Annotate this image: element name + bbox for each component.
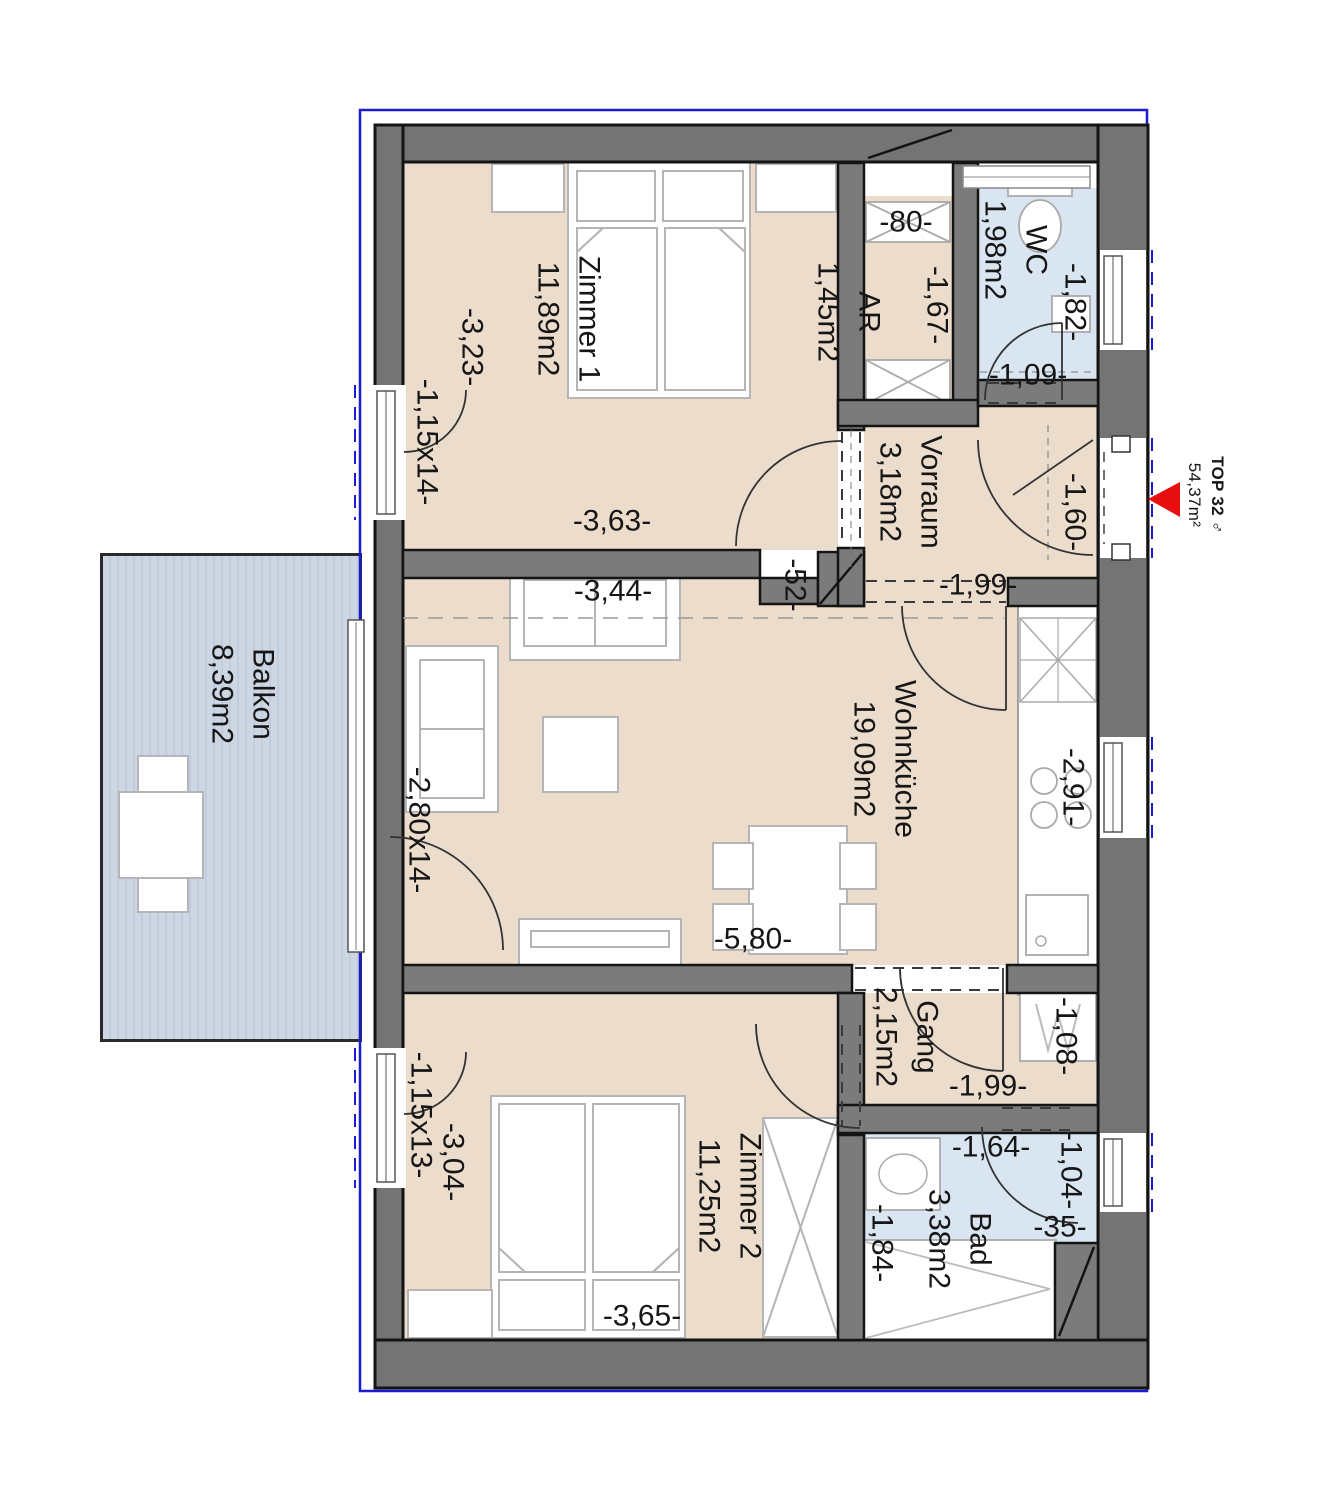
floor-plan: Zimmer 111,89m2 WC1,98m2 AR1,45m2 Vorrau… [0,0,1319,1502]
room-label-gang: Gang2,15m2 [865,987,948,1087]
dimension-label: -3,44- [574,570,652,611]
dimension-label: -2,80x14- [398,767,439,894]
dimension-label: -5,80- [714,918,792,959]
room-label-zimmer1: Zimmer 111,89m2 [527,256,610,383]
dimension-label: -52- [774,558,815,611]
sink-icon [1026,895,1088,955]
dimension-label: -1,04- [1050,1131,1091,1209]
dimension-label: -1,08- [1045,997,1086,1075]
room-label-bad: Bad3,38m2 [918,1189,1001,1289]
dimension-label: -1,82- [1054,263,1095,341]
room-label-ar: AR1,45m2 [807,262,890,362]
dimension-label: -3,23- [451,308,492,386]
dimension-label: -80- [879,201,932,242]
room-label-balkon: Balkon8,39m2 [201,644,284,744]
dimension-label: -2,91- [1052,748,1093,826]
dimension-label: -1,99- [949,1065,1027,1106]
dimension-label: -1,64- [952,1126,1030,1167]
dimension-label: -1,15x14- [406,379,447,506]
dimension-label: -3,63- [573,500,651,541]
dimension-label: -1,99- [939,564,1017,605]
unit-area: 54,37m² [1182,456,1205,534]
unit-label: TOP 32 ♂ 54,37m² [1182,456,1228,534]
unit-number: TOP 32 ♂ [1205,456,1228,534]
room-label-wohnkueche: Wohnküche19,09m2 [843,680,926,838]
dimension-label: -1,67- [916,266,957,344]
dimension-label: -3,04- [432,1123,473,1201]
entrance-door [1100,436,1146,560]
dimension-label: -35- [1033,1206,1086,1247]
floor-plan-drawing [0,0,1319,1502]
dimension-label: -1,09- [989,354,1067,395]
room-label-vorraum: Vorraum3,18m2 [869,435,952,548]
room-label-zimmer2: Zimmer 211,25m2 [688,1133,771,1260]
room-label-wc: WC1,98m2 [974,200,1057,300]
balcony-furniture [119,756,203,912]
dimension-label: -1,60- [1054,473,1095,551]
balcony-door-frame [348,620,364,952]
dimension-label: -3,65- [603,1295,681,1336]
dimension-label: -1,84- [861,1204,902,1282]
